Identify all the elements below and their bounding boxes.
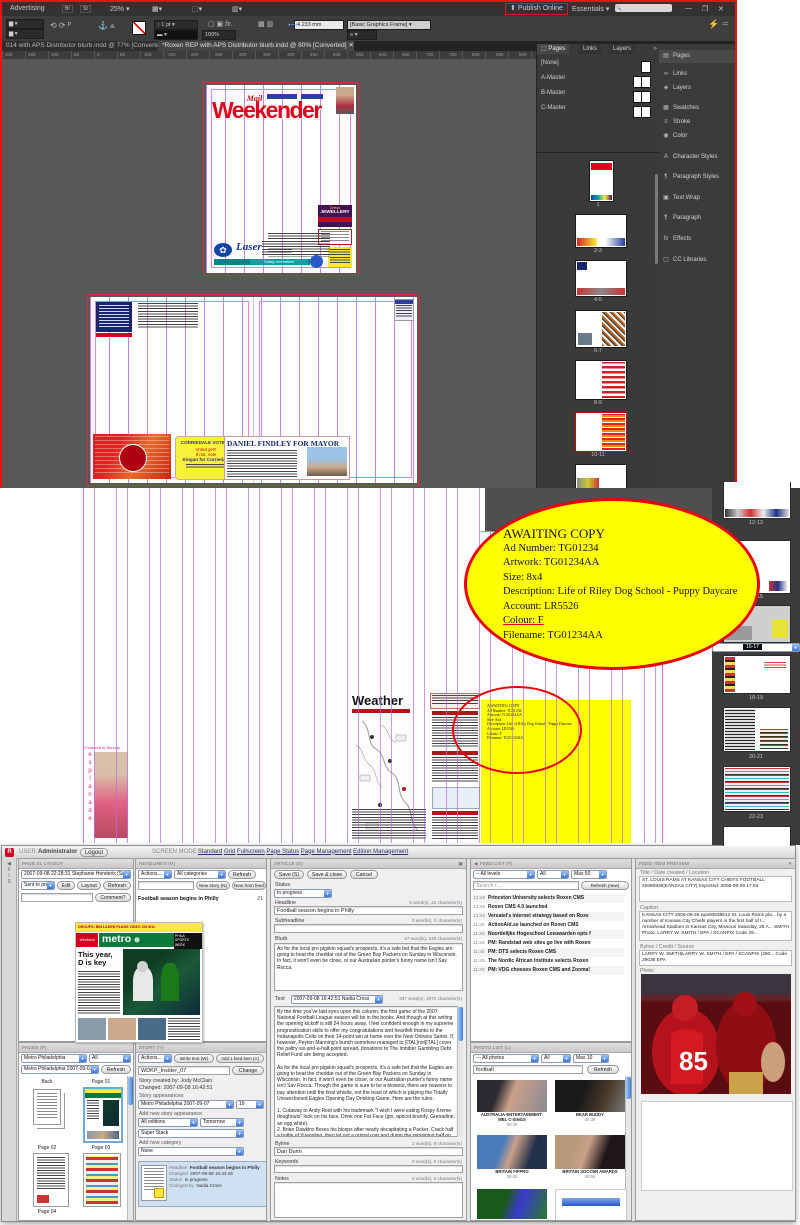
dock-swatches[interactable]: ▦Swatches [659, 102, 735, 115]
feed-max-dropdown[interactable]: Max 50 [571, 870, 607, 879]
pages-list-header: PAGES (P) [19, 1043, 133, 1053]
ticket-filename: Filename: TG01234AA [503, 629, 737, 644]
page-thumb-2-3[interactable] [575, 214, 627, 248]
page-1[interactable]: Mail Weekender Dress JEWELLERY ✿ Laser [206, 85, 356, 273]
photo-item-partial[interactable] [477, 1189, 547, 1219]
panel-options-icon[interactable]: ≔ [722, 20, 729, 28]
headline-count: 5 word(s), 32 character(s) [409, 900, 462, 905]
laser-logo-flower-icon: ✿ [214, 243, 232, 257]
actions-dropdown[interactable]: Actions... [138, 870, 172, 879]
master-b[interactable]: B-Master [541, 90, 655, 103]
headlines-header: HEADLINES (H) [136, 859, 266, 869]
add-category-label: Add new category [139, 1140, 181, 1146]
dock-stroke[interactable]: ≡Stroke [659, 116, 735, 129]
dock-character-styles[interactable]: ACharacter Styles [659, 151, 735, 164]
tab-layers[interactable]: Layers [609, 44, 635, 54]
photo-item[interactable]: AUSTRALIA-ENTERTAINMENT-MEL C-SINGS08:39 [477, 1080, 547, 1127]
indesign-control-panel: ▆ ▾ ▆ ▾ ⟲ ⟳ ᴾ ⚓ ⩓ ↕ 1 pt ▾ ▬ ▾ 100% ▢ ▣ … [2, 16, 735, 42]
nav-grid[interactable]: Grid [224, 849, 235, 855]
photo-thumb [555, 1135, 625, 1169]
categories-dropdown[interactable]: All categories [174, 870, 226, 879]
story-item-card[interactable]: Headline Football season begins in Phill… [138, 1161, 267, 1207]
page-label: 8-9 [537, 400, 659, 406]
thumb-label: 18-19 [712, 695, 800, 701]
masthead-title: Weekender [212, 97, 350, 124]
photo-thumb [477, 1135, 547, 1169]
totally-bar: Totally Incredible! [250, 259, 308, 265]
thumb-label-page01: Page 01 [77, 1079, 125, 1085]
feed-item[interactable]: 11:25The Nordic African Institute select… [473, 957, 624, 966]
indesign-window: Advertising Br St 25% ▾ ▦▾ ⬚▾ ▥▾ ⬆ Publi… [0, 0, 737, 488]
refresh-button[interactable]: Refresh [103, 881, 131, 890]
feed-item-empty-box [641, 1101, 793, 1191]
swatch-dropdown[interactable]: ▆ ▾ [6, 19, 44, 29]
awaiting-copy-callout: AWAITING COPY Ad Number: TG01234 Artwork… [464, 498, 760, 670]
logout-button[interactable]: Logout [80, 848, 108, 857]
story-created: Story created by: Jody McClain [139, 1078, 212, 1084]
photos-filter-dropdown[interactable]: --- All photos [473, 1054, 539, 1063]
master-a[interactable]: A-Master [541, 75, 655, 88]
pages-refresh-button[interactable]: Refresh [101, 1065, 131, 1074]
page-layout-header: PAGE 01 LAYOUT [19, 859, 133, 869]
dock-color[interactable]: ◉Color [659, 130, 735, 143]
stroke-color-chip[interactable] [132, 21, 146, 35]
status-dropdown[interactable]: In progress [274, 889, 332, 898]
save-button[interactable]: Save (S) [274, 870, 304, 879]
page2-text [138, 303, 198, 329]
margin-guide-left [83, 488, 84, 843]
byline-field[interactable]: Dan Dunn [274, 1147, 463, 1156]
ticket-artwork: Artwork: TG01234AA [503, 556, 737, 571]
page-label: 10-11 [537, 452, 659, 458]
feed-item[interactable]: 11:25Noordelijke Hogeschool Leeuwarden o… [473, 930, 624, 939]
stack-dropdown[interactable]: Super Stack [138, 1129, 244, 1138]
photos-search-input[interactable]: football [473, 1065, 583, 1074]
new-from-feed-button[interactable]: New from feed [232, 881, 266, 890]
ticket-account: Account: LR5526 [503, 600, 737, 615]
edit-button[interactable]: Edit [57, 881, 75, 890]
thumb-label-selected: 16-17 [712, 643, 800, 652]
feed-item[interactable]: 11:25ActionAid.se launched on Roxen CMS [473, 921, 624, 930]
ticket-description: Description: Life of Riley Dog School - … [503, 585, 737, 600]
swatch-dropdown2[interactable]: ▆ ▾ [6, 29, 44, 39]
page-thumb-1[interactable] [589, 160, 614, 202]
screen-mode-icon[interactable]: ⬚▾ [192, 5, 202, 13]
article-panel-icons[interactable]: ▣ [458, 859, 463, 868]
jewellery-ad: Dress JEWELLERY [318, 205, 352, 227]
view-options-icon[interactable]: ▦▾ [152, 5, 162, 13]
ticket-colour: Colour: F [503, 614, 737, 629]
master-none[interactable]: [None] [541, 60, 655, 73]
dock-paragraph-styles[interactable]: ¶Paragraph Styles [659, 171, 735, 184]
feed-list-header: ◀FEED LIST (F) [471, 859, 631, 869]
headline-field[interactable]: Football season begins in Philly [274, 906, 463, 915]
mayor-ad: DANIEL FINDLEY FOR MAYOR [224, 436, 350, 480]
photo-item-partial2[interactable] [555, 1189, 627, 1221]
caption-box[interactable]: KANSAS CITY 2006-08-26 epa00838812 St. L… [639, 911, 792, 941]
align-dropdown[interactable]: ≡ ▾ [347, 30, 377, 40]
indesign-app-bar: Advertising Br St 25% ▾ ▦▾ ⬚▾ ▥▾ ⬆ Publi… [2, 2, 735, 16]
ticket-title: AWAITING COPY [503, 527, 737, 542]
photo-item[interactable]: BEAR BUDDY08:39 [555, 1080, 625, 1122]
notes-field[interactable] [274, 1182, 463, 1218]
photo-item[interactable]: BRITAIN FIFPRO08:53 [477, 1135, 547, 1179]
stroke-weight-field[interactable]: ↕ 1 pt ▾ [154, 20, 198, 30]
photo-thumb [477, 1080, 547, 1112]
new-story-button[interactable]: New story (N) [196, 881, 230, 890]
feed-item-photo[interactable]: 85 [641, 974, 791, 1094]
text-field[interactable]: By the time you've laid eyes upon this c… [274, 1006, 458, 1137]
stroke-type-dropdown[interactable]: ▬ ▾ [154, 30, 198, 40]
workspace-switcher[interactable]: Essentials ▾ [572, 5, 609, 13]
preview-brand-left: Weekend [76, 933, 98, 947]
thumb-22-23[interactable] [723, 766, 791, 812]
yellow-corner-ad [328, 247, 352, 267]
horizontal-ruler[interactable]: 200150 10050 050 100150 200250 300350 40… [2, 51, 538, 59]
category-dropdown[interactable]: None [138, 1147, 244, 1156]
feed-item[interactable]: 13:48Roxen CMS 4.0 launched [473, 903, 624, 912]
feed-all-dropdown[interactable]: All [537, 870, 569, 879]
thumb-18-19[interactable] [723, 655, 791, 694]
change-button[interactable]: Change [232, 1066, 264, 1075]
feed-search-input[interactable]: Search t... [473, 881, 579, 890]
pages-panel: ⬚ Pages Links Layers » [None] A-Master B… [536, 44, 659, 488]
photo-thumb [555, 1080, 625, 1112]
restore-icon[interactable]: ❐ [702, 5, 708, 13]
scale-percent-field[interactable]: 100% [202, 30, 236, 40]
status-label: Status [275, 882, 290, 888]
document-canvas[interactable]: Mail Weekender Dress JEWELLERY ✿ Laser [2, 59, 538, 488]
nav-page-status[interactable]: Page Status [266, 849, 299, 855]
dock-text-wrap[interactable]: ▣Text Wrap [659, 192, 735, 205]
page-label: 2-3 [537, 248, 659, 254]
add-appearance-label: Add new story appearance [139, 1111, 202, 1117]
tab-pages[interactable]: ⬚ Pages [537, 44, 569, 54]
feed-item-close-icon[interactable]: ✕ [788, 859, 792, 868]
page-thumb-6-7[interactable] [575, 310, 627, 348]
index-red-bar [96, 333, 132, 337]
master-c[interactable]: C-Master [541, 105, 655, 118]
mayor-photo [307, 447, 347, 476]
jewellery-red-bar [318, 217, 352, 222]
story-slug-input[interactable]: WDKP_Insider_07 [138, 1066, 230, 1075]
feed-item-header: FEED ITEM PREVIEW✕ [636, 859, 795, 869]
headline-item-page: 21 [257, 895, 263, 904]
bridge-icon[interactable]: Br [62, 5, 73, 13]
mini-table-box [394, 299, 414, 321]
preview-topline: GROUPS: BIN LADEN PLANS VIDEO ON 9/11 [76, 923, 202, 932]
pages-all-dropdown[interactable]: All [89, 1054, 131, 1063]
preview-body-text [78, 971, 120, 1015]
page-label: 4-5 [537, 297, 659, 303]
thumb-12-13[interactable] [723, 482, 791, 519]
spread-2-3[interactable]: CORRIEDALE VOTERS Voted yet? If not, vot… [90, 297, 417, 483]
minimize-icon[interactable]: — [685, 5, 692, 12]
feed-list-panel: ◀FEED LIST (F) -- All levels All Max 50 … [470, 858, 632, 1042]
article-header: ARTICLE (S)▣ [271, 859, 466, 869]
dock-paragraph[interactable]: ¶Paragraph [659, 212, 735, 225]
front-page-preview[interactable]: GROUPS: BIN LADEN PLANS VIDEO ON 9/11 We… [75, 922, 203, 1043]
photo-list-header: PHOTO LIST (L) [471, 1043, 631, 1053]
blurb-label: Blurb [275, 936, 287, 942]
back-pages-icon[interactable] [33, 1089, 61, 1125]
save-close-button[interactable]: Save & close [307, 870, 347, 879]
laser-wordmark: Laser [236, 241, 262, 253]
photo-item[interactable]: BRITAIN SOCCER AWARDS08:55 [555, 1135, 625, 1179]
blurb-count: 47 word(s), 246 character(s) [404, 936, 462, 941]
page-label: 6-7 [537, 348, 659, 354]
screen-mode-label: SCREEN MODE: [152, 849, 198, 855]
feed-item[interactable]: 11:25PM: VDG chooses Roxen CMS and Zooma… [473, 966, 624, 975]
page-revision-dropdown[interactable]: 2007-09-08 22:28:31 Stephanie Henderix (… [21, 870, 131, 879]
user-name: Administrator [38, 849, 77, 855]
election-ad [93, 434, 171, 479]
byline-box[interactable]: LARRY W. SMITH|LARRY W. SMITH / EPA / SC… [639, 950, 792, 966]
edition-dropdown[interactable]: Metro Philadelphia 2007-09-07 [21, 1065, 99, 1074]
write-text-button[interactable]: Write text (W) [174, 1054, 214, 1063]
nav-page-management[interactable]: Page Management [301, 849, 352, 855]
story-item-thumb [141, 1165, 167, 1201]
text-scrollbar[interactable] [457, 1006, 463, 1137]
cms-window: R USER: Administrator Logout SCREEN MODE… [1, 845, 796, 1222]
page-thumb-10-11[interactable] [575, 412, 627, 452]
cancel-button[interactable]: Cancel [350, 870, 378, 879]
thumb-label: 22-23 [712, 814, 800, 820]
story-panel: STORY (Y) Actions... Write text (W) Add … [135, 1042, 267, 1221]
cms-side-strip[interactable]: ◀FIS [2, 858, 17, 1221]
preview-headline: This year,D is key [78, 951, 122, 967]
zoom-level-dropdown[interactable]: 25% ▾ [110, 5, 129, 13]
comment-input[interactable] [21, 893, 93, 902]
document-tab-1[interactable]: 014 with APS Distributor blurb.indd @ 77… [2, 41, 162, 51]
preview-masthead: Weekend metro ⊕ PHILASPORTSWEEK [76, 932, 202, 948]
nav-standard[interactable]: Standard [198, 849, 222, 855]
panel-dock: ▤Pages ∞Links ◈Layers ▦Swatches ≡Stroke … [659, 44, 735, 488]
measure-field[interactable]: 4.233 mm [294, 20, 344, 30]
publish-online-button[interactable]: ⬆ Publish Online [505, 3, 568, 15]
lightning-icon[interactable]: ⚡ [708, 19, 719, 30]
thumb-label-page03: Page 03 [77, 1145, 125, 1151]
subheadline-count: 0 word(s), 0 character(s) [412, 918, 462, 923]
dock-layers[interactable]: ◈Layers [659, 82, 735, 95]
tab-links[interactable]: Links [579, 44, 601, 54]
photo-list-panel: PHOTO LIST (L) --- All photos All Max 10… [470, 1042, 632, 1221]
keywords-field[interactable] [274, 1165, 463, 1173]
page02-thumb[interactable] [33, 1153, 69, 1207]
rotate-icons[interactable]: ⟲ ⟳ ᴾ [50, 21, 71, 30]
add-feed-item-button[interactable]: Add 1 feed item (A) [216, 1054, 264, 1063]
article-panel: ARTICLE (S)▣ Save (S) Save & close Cance… [270, 858, 467, 1221]
byline-count: 2 word(s), 8 character(s) [412, 1141, 462, 1146]
close-icon[interactable]: ✕ [718, 5, 724, 13]
blue-badge [310, 255, 323, 268]
ticket-ad-number: Ad Number: TG01234 [503, 542, 737, 557]
frame-icons[interactable]: ▢ ▣ fx. [208, 20, 233, 28]
notes-count: 0 word(s), 0 character(s) [412, 1176, 462, 1181]
cover-figure-image [336, 87, 354, 114]
page-thumb-12-13-partial[interactable] [575, 464, 627, 490]
story-changed: Changed: 2007-09-08 16:42:51 [139, 1085, 213, 1091]
feed-levels-dropdown[interactable]: -- All levels [473, 870, 535, 879]
nav-fullscreen[interactable]: Fullscreen [237, 849, 265, 855]
preview-brand-right: PHILASPORTSWEEK [174, 933, 202, 949]
page-thumb-4-5[interactable] [575, 260, 627, 297]
thumb-24-25-partial[interactable] [723, 826, 791, 846]
dock-pages[interactable]: ▤Pages [659, 50, 735, 63]
feed-item-title-box[interactable]: ST. LOUIS RAMS AT KANSAS CITY CHIEFS FOO… [639, 876, 792, 902]
headlines-refresh-button[interactable]: Refresh [228, 870, 256, 879]
object-style-dropdown[interactable]: [Basic Graphics Frame] ▾ [347, 20, 431, 30]
screenshot-root: Advertising Br St 25% ▾ ▦▾ ⬚▾ ▥▾ ⬆ Publi… [0, 0, 800, 1225]
preview-brand: metro ⊕ [99, 933, 176, 947]
annotation-oval-small [452, 686, 582, 774]
feed-item-panel: FEED ITEM PREVIEW✕ Title / Date created … [635, 858, 796, 1221]
nav-edition-management[interactable]: Edition Management [353, 849, 408, 855]
workspace-menu[interactable]: Advertising [10, 5, 45, 12]
fitting-icons[interactable]: ▩ ▥ [258, 20, 273, 28]
search-input[interactable]: 🔍 [615, 4, 672, 12]
zoomed-layout-view: Featured in Sunday esplanade Weather [0, 488, 800, 845]
story-header: STORY (Y) [136, 1043, 266, 1053]
blurb-field[interactable]: As for the local pro pigskin squad's pro… [274, 943, 463, 991]
stock-icon[interactable]: St [80, 5, 91, 13]
page03-thumb[interactable] [83, 1153, 121, 1207]
thumb-label-page02: Page 02 [25, 1145, 69, 1151]
thumb-label: 20-21 [712, 754, 800, 760]
preview-photo [123, 949, 200, 1015]
when-dropdown[interactable]: Tomorrow [200, 1118, 244, 1127]
photos-all-dropdown[interactable]: All [541, 1054, 571, 1063]
text-label: Text [275, 996, 285, 1002]
pages-list-panel: PAGES (P) Metro Philadelphia All Metro P… [18, 1042, 134, 1221]
gap-icon: ⟷ [288, 21, 298, 29]
flip-icons[interactable]: ⚓ ⩓ [98, 21, 115, 31]
thumb-20-21[interactable] [723, 707, 791, 752]
panel-divider [537, 152, 659, 153]
layout-button[interactable]: Layout [77, 881, 101, 890]
text-revision-dropdown[interactable]: 2007-09-08 16:42:51 Nadia Cross [291, 995, 383, 1004]
arrange-docs-icon[interactable]: ▥▾ [232, 5, 242, 13]
feed-item[interactable]: 11:25PM: Randstad web sites go live with… [473, 939, 624, 948]
pages-scrollbar[interactable] [127, 1076, 133, 1220]
publication-dropdown[interactable]: Metro Philadelphia [21, 1054, 87, 1063]
feed-item[interactable]: 13:48Versatel's internet strategy based … [473, 912, 624, 921]
appearance-dropdown[interactable]: Metro Philadelphia 2007-09-07 [138, 1100, 234, 1109]
thumb-label: 12-13 [712, 520, 800, 526]
photos-refresh-button[interactable]: Refresh [587, 1065, 619, 1074]
index-blue-box [96, 302, 132, 332]
cms-logo: R [5, 848, 14, 857]
thumb-label-page04: Page 04 [25, 1209, 69, 1215]
ticket-size: Size: 8x4 [503, 571, 737, 586]
headline-list-item[interactable]: Football season begins in Philly 21 [138, 895, 264, 904]
pages-scrollbar[interactable] [655, 174, 658, 264]
subheadline-field[interactable] [274, 924, 463, 933]
feed-item[interactable]: 11:25PM: DTS selects Roxen CMS [473, 948, 624, 957]
dock-cc-libraries[interactable]: ▢CC Libraries [659, 254, 735, 267]
text-count: 337 word(s), 1972 character(s) [399, 996, 462, 1001]
page01-thumb-selected[interactable] [83, 1087, 123, 1143]
panel-collapse-icon[interactable]: » [654, 46, 657, 52]
document-tab-2-active[interactable]: *Roxen REP with APS Distributor blurb.in… [158, 41, 354, 51]
dock-links[interactable]: ∞Links [659, 68, 735, 81]
dock-effects[interactable]: fxEffects [659, 233, 735, 246]
keywords-count: 0 word(s), 0 character(s) [412, 1159, 462, 1164]
sent-to-dropdown[interactable]: Sent to pre [21, 881, 55, 890]
preview-bottom-strip [78, 1018, 200, 1040]
headlines-search-input[interactable] [138, 881, 194, 890]
thumb-label-back: Back [25, 1079, 69, 1085]
feed-item[interactable]: 13:48Princeton University selects Roxen … [473, 894, 624, 903]
editions-dropdown[interactable]: All editions [138, 1118, 198, 1127]
story-actions-dropdown[interactable]: Actions... [138, 1054, 172, 1063]
feed-refresh-button[interactable]: Refresh (new) [581, 881, 629, 890]
photos-max-dropdown[interactable]: Max 10 [573, 1054, 609, 1063]
comment-button[interactable]: Comment? [95, 893, 131, 902]
page-label: 1 [537, 202, 659, 208]
appearances-label: Story appearances [139, 1093, 183, 1099]
appearance-page-dropdown[interactable]: 19 [236, 1100, 264, 1109]
page-thumb-8-9[interactable] [575, 360, 627, 400]
user-label: USER: [19, 849, 37, 855]
listing-text-cols [268, 233, 330, 257]
svg-text:85: 85 [679, 1046, 708, 1076]
